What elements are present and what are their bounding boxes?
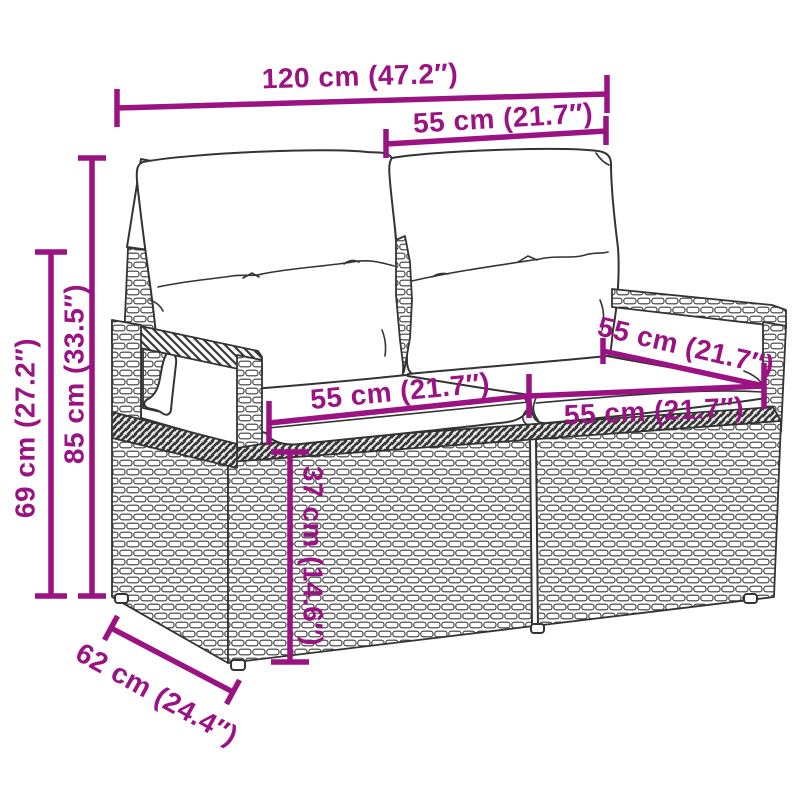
foot (531, 624, 544, 633)
dimension-label-armrest-height: 69 cm (27.2″) (10, 338, 41, 518)
dimension-label-overall-width: 120 cm (47.2″) (261, 58, 458, 95)
product-dimension-diagram: 120 cm (47.2″) 55 cm (21.7″) 85 cm (33.5… (0, 0, 800, 800)
foot (744, 594, 757, 603)
diagram-canvas: 120 cm (47.2″) 55 cm (21.7″) 85 cm (33.5… (0, 0, 800, 800)
foot (231, 660, 245, 670)
dimension-label-seat-height: 37 cm (14.6″) (298, 466, 329, 646)
armrest-left-front-post (112, 320, 141, 422)
foot (115, 594, 128, 603)
armrest-left-window-post (237, 355, 262, 448)
dimension-label-total-height: 85 cm (33.5″) (59, 284, 90, 464)
back-cushion-right (389, 149, 618, 376)
